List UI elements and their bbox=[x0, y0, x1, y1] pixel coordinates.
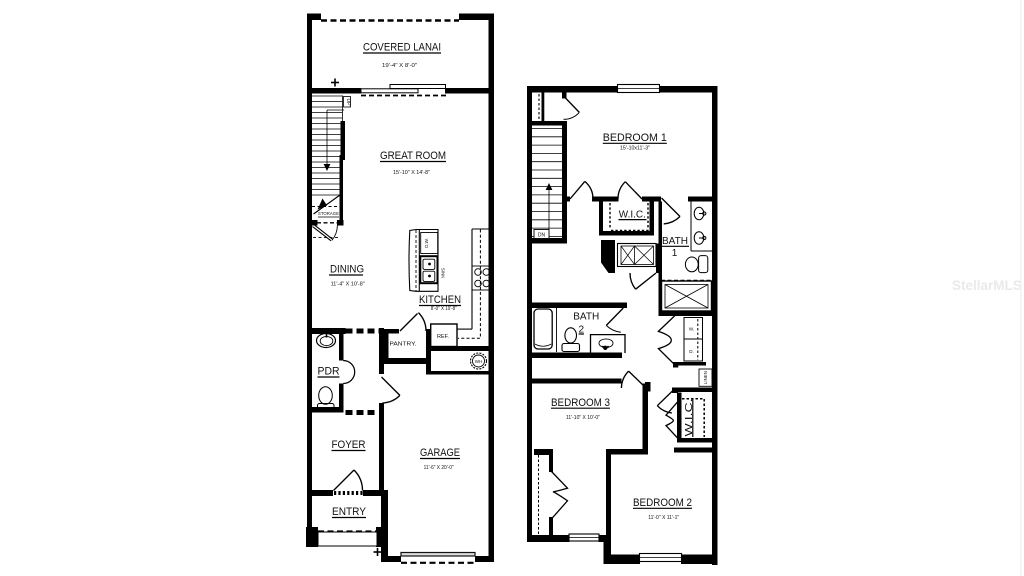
svg-text:15'-10x11'-3": 15'-10x11'-3" bbox=[620, 145, 650, 151]
svg-text:StellarMLS: StellarMLS bbox=[952, 278, 1022, 293]
svg-text:1: 1 bbox=[672, 248, 678, 259]
svg-text:BEDROOM 3: BEDROOM 3 bbox=[551, 397, 610, 409]
svg-text:UP: UP bbox=[345, 99, 351, 107]
svg-text:PDR: PDR bbox=[318, 366, 340, 378]
svg-text:8'-0" X 10'-8": 8'-0" X 10'-8" bbox=[431, 306, 457, 312]
svg-text:DINING: DINING bbox=[330, 264, 364, 276]
svg-text:W.I.C.: W.I.C. bbox=[684, 399, 695, 437]
svg-text:STORAGE: STORAGE bbox=[318, 211, 339, 216]
svg-text:BATH: BATH bbox=[662, 236, 688, 247]
svg-text:FOYER: FOYER bbox=[332, 439, 366, 451]
svg-text:11'-10" X 10'-0": 11'-10" X 10'-0" bbox=[566, 415, 600, 421]
svg-text:19'-4" X 8'-0": 19'-4" X 8'-0" bbox=[382, 63, 417, 69]
svg-text:BATH: BATH bbox=[573, 312, 599, 323]
svg-text:W.I.C.: W.I.C. bbox=[619, 210, 646, 221]
svg-text:W.: W. bbox=[689, 327, 694, 332]
svg-text:LINEN: LINEN bbox=[703, 371, 708, 384]
svg-text:KITCHEN: KITCHEN bbox=[419, 294, 461, 306]
svg-text:SINK: SINK bbox=[441, 268, 446, 279]
svg-text:BEDROOM 1: BEDROOM 1 bbox=[603, 132, 667, 144]
svg-text:PANTRY.: PANTRY. bbox=[390, 342, 418, 348]
svg-text:ENTRY: ENTRY bbox=[332, 506, 366, 518]
svg-text:WH: WH bbox=[475, 359, 483, 364]
svg-text:11'-0" X 11'-1": 11'-0" X 11'-1" bbox=[648, 515, 679, 521]
svg-text:D.: D. bbox=[689, 349, 694, 354]
svg-text:D.W.: D.W. bbox=[424, 238, 429, 248]
svg-text:GREAT ROOM: GREAT ROOM bbox=[380, 150, 446, 162]
svg-text:11'-4" X 10'-8": 11'-4" X 10'-8" bbox=[331, 281, 365, 287]
svg-text:COVERED LANAI: COVERED LANAI bbox=[363, 42, 441, 54]
svg-text:15'-10" X 14'-8": 15'-10" X 14'-8" bbox=[393, 170, 430, 176]
svg-text:DN: DN bbox=[538, 233, 546, 239]
svg-text:GARAGE: GARAGE bbox=[420, 447, 460, 459]
svg-text:11'-6" X 20'-0": 11'-6" X 20'-0" bbox=[424, 465, 454, 471]
svg-text:REF.: REF. bbox=[437, 334, 449, 340]
svg-text:BEDROOM 2: BEDROOM 2 bbox=[633, 497, 692, 509]
